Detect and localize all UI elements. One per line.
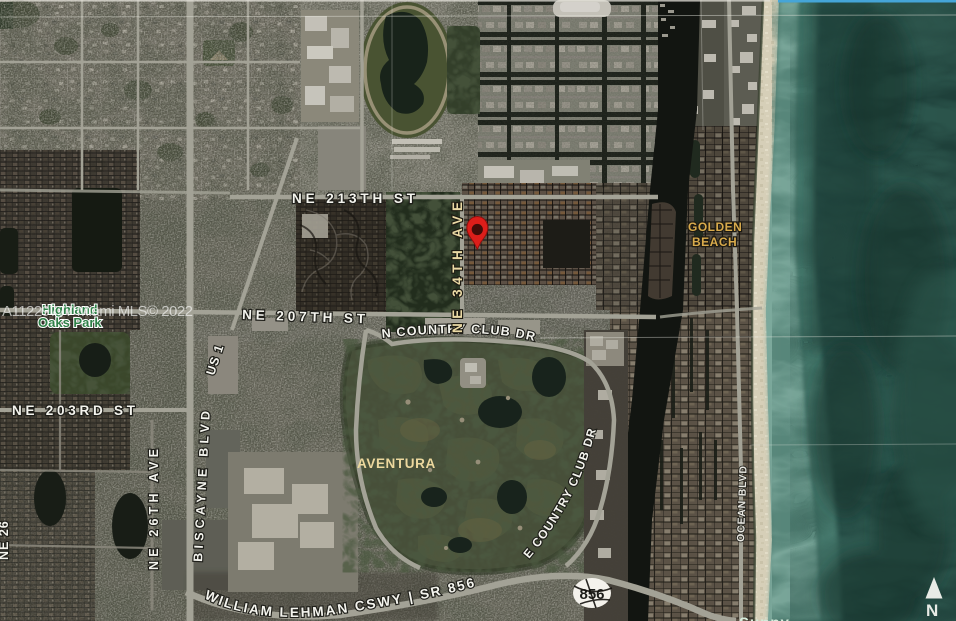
svg-text:NE 203RD ST: NE 203RD ST xyxy=(12,403,136,418)
svg-text:AVENTURA: AVENTURA xyxy=(357,456,436,471)
svg-text:A11229777 Miami MLS© 2022: A11229777 Miami MLS© 2022 xyxy=(2,303,193,320)
svg-text:NE 213TH ST: NE 213TH ST xyxy=(292,191,416,206)
svg-text:N: N xyxy=(926,601,938,620)
svg-text:GOLDEN: GOLDEN xyxy=(688,220,742,234)
svg-text:NE 26: NE 26 xyxy=(0,520,11,560)
svg-text:BEACH: BEACH xyxy=(692,235,737,249)
svg-text:NE 26TH AVE: NE 26TH AVE xyxy=(147,448,161,570)
svg-text:NE 34TH AVE: NE 34TH AVE xyxy=(450,201,465,333)
svg-text:Sunny: Sunny xyxy=(739,615,790,621)
